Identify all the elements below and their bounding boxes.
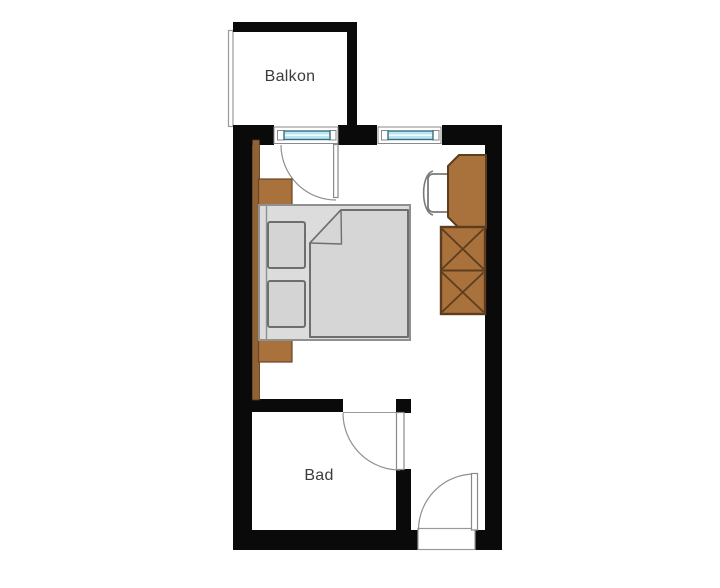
wall-right [485, 125, 502, 550]
balcony-door-leaf [334, 145, 338, 198]
wardrobe [441, 227, 485, 314]
balcony-railing [229, 31, 234, 127]
wall-left [233, 125, 252, 550]
bathroom-room: Bad [304, 413, 404, 485]
balcony-wall-right [347, 22, 357, 127]
entrance-door [418, 474, 478, 550]
balcony-wall-top [233, 22, 357, 32]
nightstand-upper [259, 179, 293, 207]
entrance-door-leaf [472, 474, 478, 531]
bathroom-wall-right-stub [396, 399, 411, 413]
window-1 [274, 127, 338, 144]
bathroom-door-leaf [397, 413, 405, 470]
bathroom-wall-right [396, 469, 411, 550]
wall-bottom-segment-left [233, 530, 418, 550]
bathroom-label: Bad [304, 467, 333, 484]
double-bed [259, 205, 410, 340]
pillow-bottom [268, 281, 305, 327]
balcony-label: Balkon [265, 68, 316, 85]
pillow-top [268, 222, 305, 268]
wall-top-segment-middle [338, 125, 377, 145]
bathroom-door-arc [343, 413, 400, 470]
entrance-door-arc [419, 474, 475, 530]
wall-top-segment-right [442, 125, 502, 145]
floorplan: Balkon [0, 0, 720, 588]
window-2-jamb-left [382, 131, 389, 141]
desk [448, 155, 486, 228]
floorplan-canvas: Balkon [0, 0, 720, 588]
window-2 [378, 127, 441, 144]
balcony-room: Balkon [229, 22, 358, 127]
wall-bottom-segment-right [475, 530, 502, 550]
window-1-jamb-left [278, 131, 285, 141]
entrance-threshold [418, 529, 475, 550]
chair [424, 171, 451, 215]
bathroom-wall-top [240, 399, 343, 412]
